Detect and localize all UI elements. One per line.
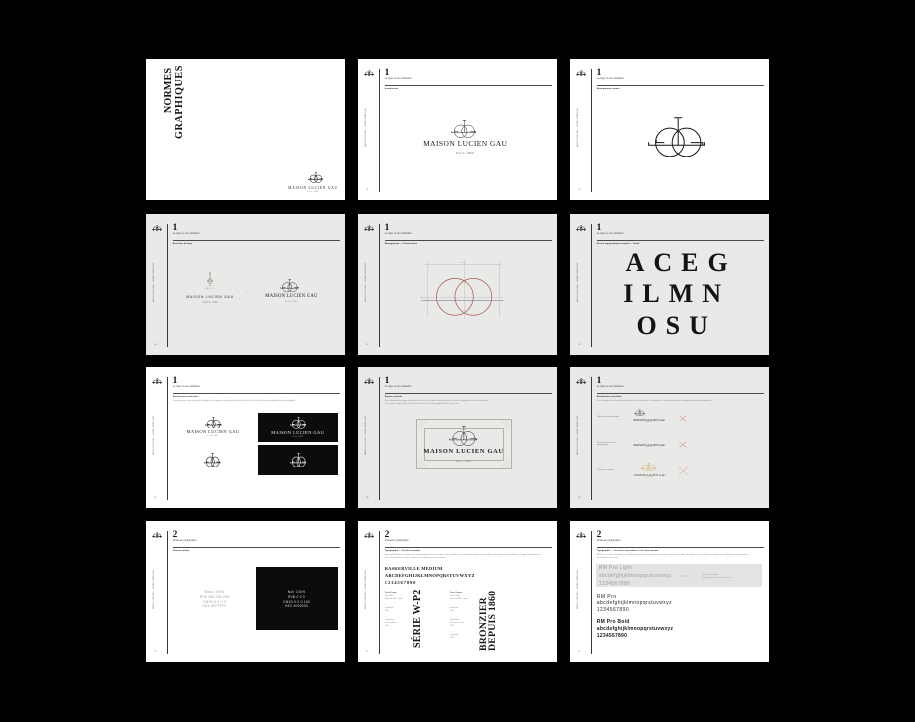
svg-text:r = 1x: r = 1x [460,261,466,264]
